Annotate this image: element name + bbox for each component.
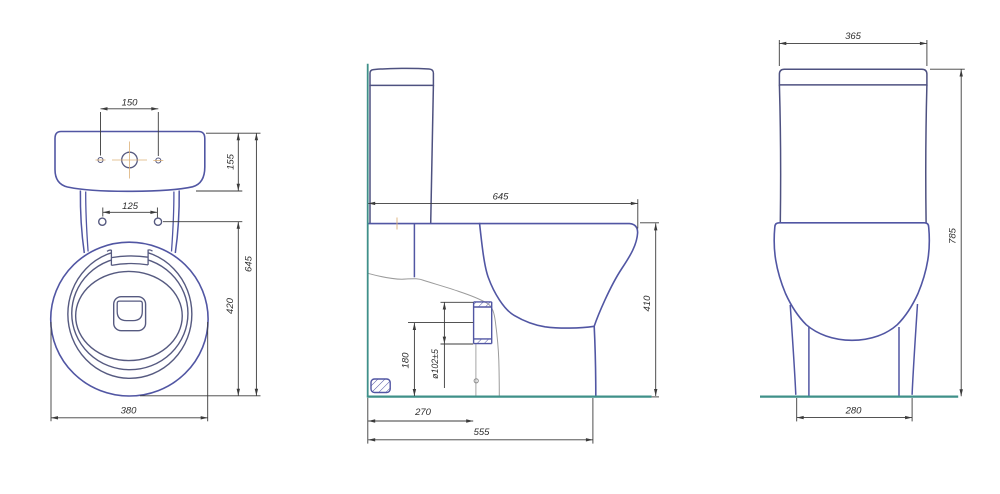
svg-text:420: 420 <box>225 297 236 314</box>
svg-text:ø102±5: ø102±5 <box>430 349 440 379</box>
svg-text:280: 280 <box>845 406 863 417</box>
svg-text:125: 125 <box>122 201 139 212</box>
svg-text:155: 155 <box>226 153 237 170</box>
svg-text:555: 555 <box>474 427 491 438</box>
svg-text:180: 180 <box>401 352 412 369</box>
svg-text:645: 645 <box>493 192 510 203</box>
svg-text:365: 365 <box>845 31 862 42</box>
svg-text:410: 410 <box>642 295 653 312</box>
svg-text:270: 270 <box>414 407 432 418</box>
svg-text:150: 150 <box>122 97 139 108</box>
svg-text:785: 785 <box>948 227 959 244</box>
svg-text:380: 380 <box>121 405 138 416</box>
svg-text:645: 645 <box>244 255 255 272</box>
